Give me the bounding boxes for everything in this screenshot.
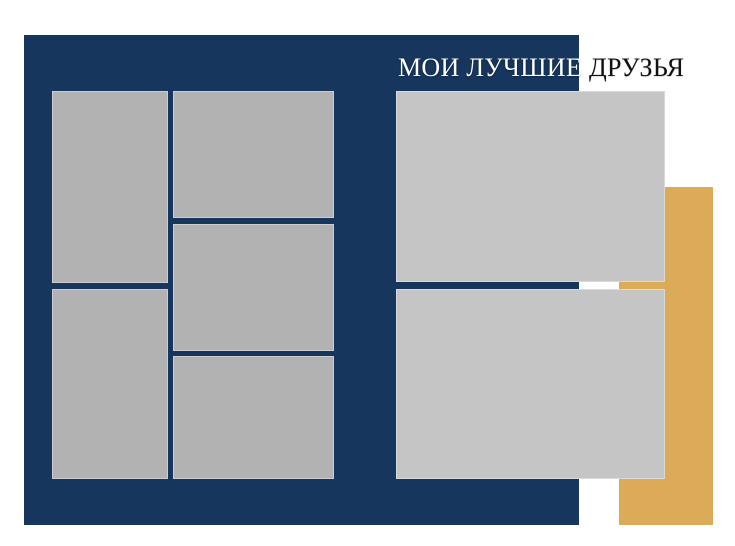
photo-placeholder-center-top: [173, 91, 334, 218]
photo-placeholder-left-bottom: [52, 289, 168, 479]
photo-placeholder-left-top: [52, 91, 168, 283]
page-title-dark-part: ДРУЗЬЯ: [589, 53, 684, 82]
collage-page: МОИ ЛУЧШИЕДРУЗЬЯ: [0, 0, 735, 546]
page-title: МОИ ЛУЧШИЕДРУЗЬЯ: [398, 55, 684, 81]
page-title-light-part: МОИ ЛУЧШИЕ: [398, 53, 582, 82]
photo-placeholder-right-bottom: [396, 289, 665, 479]
photo-placeholder-center-middle: [173, 224, 334, 351]
photo-placeholder-center-bottom: [173, 356, 334, 479]
photo-placeholder-right-top: [396, 91, 665, 282]
